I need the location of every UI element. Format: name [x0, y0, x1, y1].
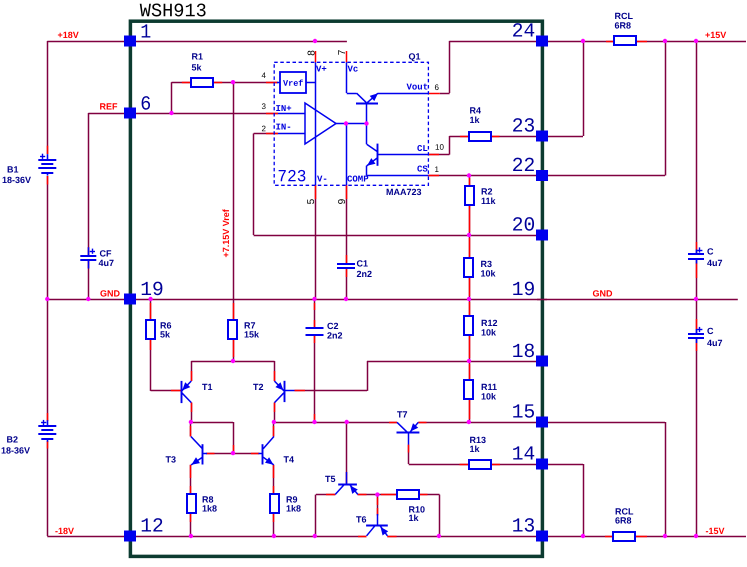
- svg-text:22: 22: [512, 155, 536, 178]
- svg-text:T2: T2: [253, 382, 264, 392]
- svg-text:5: 5: [306, 198, 317, 204]
- svg-text:10: 10: [435, 143, 444, 152]
- svg-text:T6: T6: [356, 515, 367, 525]
- svg-text:C1: C1: [356, 259, 368, 269]
- svg-text:10k: 10k: [480, 269, 496, 279]
- svg-text:1k8: 1k8: [286, 504, 301, 514]
- svg-text:T4: T4: [283, 455, 294, 465]
- svg-text:1k: 1k: [408, 513, 419, 523]
- svg-text:2n2: 2n2: [327, 331, 343, 341]
- svg-text:CF: CF: [99, 249, 112, 259]
- svg-text:CL: CL: [417, 144, 428, 154]
- svg-text:1k: 1k: [469, 444, 480, 454]
- svg-text:14: 14: [512, 444, 536, 467]
- svg-text:B2: B2: [6, 435, 18, 445]
- svg-text:V-: V-: [317, 175, 328, 185]
- svg-text:18-36V: 18-36V: [2, 175, 31, 185]
- svg-text:1k: 1k: [469, 115, 480, 125]
- svg-text:6: 6: [434, 83, 439, 92]
- svg-text:REF: REF: [99, 102, 118, 112]
- svg-text:Vref: Vref: [283, 79, 303, 89]
- svg-text:15k: 15k: [244, 330, 260, 340]
- svg-text:T7: T7: [397, 410, 408, 420]
- svg-text:5k: 5k: [191, 63, 202, 73]
- svg-text:18-36V: 18-36V: [1, 446, 30, 456]
- svg-text:RCL: RCL: [614, 11, 633, 21]
- svg-text:-15V: -15V: [705, 526, 724, 536]
- svg-text:Vc: Vc: [347, 65, 358, 75]
- svg-text:T5: T5: [325, 474, 336, 484]
- svg-text:1k8: 1k8: [202, 504, 217, 514]
- svg-text:T1: T1: [202, 382, 213, 392]
- svg-text:1: 1: [140, 22, 151, 45]
- svg-text:V+: V+: [316, 65, 327, 75]
- svg-text:2n2: 2n2: [356, 269, 372, 279]
- svg-text:R4: R4: [469, 106, 481, 116]
- svg-text:MAA723: MAA723: [386, 187, 422, 197]
- svg-text:B1: B1: [7, 165, 19, 175]
- svg-text:-18V: -18V: [55, 526, 74, 536]
- svg-text:10k: 10k: [481, 328, 497, 338]
- svg-text:10k: 10k: [481, 392, 497, 402]
- svg-text:1: 1: [434, 165, 439, 174]
- svg-text:12: 12: [140, 516, 164, 539]
- svg-text:4u7: 4u7: [707, 258, 723, 268]
- svg-text:T3: T3: [165, 455, 176, 465]
- svg-text:23: 23: [512, 116, 536, 139]
- svg-text:C2: C2: [327, 321, 339, 331]
- svg-text:19: 19: [140, 279, 164, 302]
- svg-text:4u7: 4u7: [707, 338, 723, 348]
- svg-text:5k: 5k: [160, 330, 171, 340]
- svg-text:CS: CS: [417, 165, 428, 175]
- svg-text:WSH913: WSH913: [140, 0, 207, 22]
- svg-text:18: 18: [512, 341, 536, 364]
- svg-text:9: 9: [337, 198, 348, 204]
- svg-text:C: C: [707, 326, 714, 336]
- svg-text:R2: R2: [481, 187, 493, 197]
- svg-text:Vout: Vout: [406, 83, 428, 93]
- svg-text:IN+: IN+: [275, 104, 291, 114]
- svg-text:7: 7: [337, 49, 348, 55]
- svg-text:+15V: +15V: [705, 30, 726, 40]
- svg-text:8: 8: [306, 50, 317, 56]
- svg-text:R11: R11: [481, 382, 497, 392]
- svg-text:6R8: 6R8: [615, 516, 632, 526]
- svg-text:IN-: IN-: [275, 123, 291, 133]
- svg-text:R3: R3: [480, 259, 492, 269]
- svg-text:723: 723: [277, 168, 306, 187]
- svg-text:6R8: 6R8: [614, 21, 631, 31]
- svg-text:COMP: COMP: [347, 175, 369, 185]
- svg-text:15: 15: [512, 402, 536, 425]
- svg-text:R1: R1: [191, 52, 203, 62]
- svg-text:2: 2: [261, 124, 266, 133]
- svg-text:11k: 11k: [481, 196, 497, 206]
- svg-text:+18V: +18V: [57, 30, 78, 40]
- svg-text:+7.15V Vref: +7.15V Vref: [221, 208, 231, 257]
- svg-text:4: 4: [261, 71, 266, 80]
- svg-text:19: 19: [512, 279, 536, 302]
- svg-text:24: 24: [512, 21, 536, 44]
- svg-text:R12: R12: [481, 318, 498, 328]
- svg-text:13: 13: [512, 516, 536, 539]
- svg-text:GND: GND: [100, 289, 121, 299]
- svg-text:3: 3: [261, 102, 266, 111]
- svg-text:20: 20: [512, 215, 536, 238]
- svg-text:GND: GND: [592, 289, 613, 299]
- svg-text:4u7: 4u7: [98, 258, 114, 268]
- svg-text:C: C: [707, 247, 714, 257]
- svg-text:Q1: Q1: [408, 52, 420, 62]
- svg-text:6: 6: [140, 94, 151, 117]
